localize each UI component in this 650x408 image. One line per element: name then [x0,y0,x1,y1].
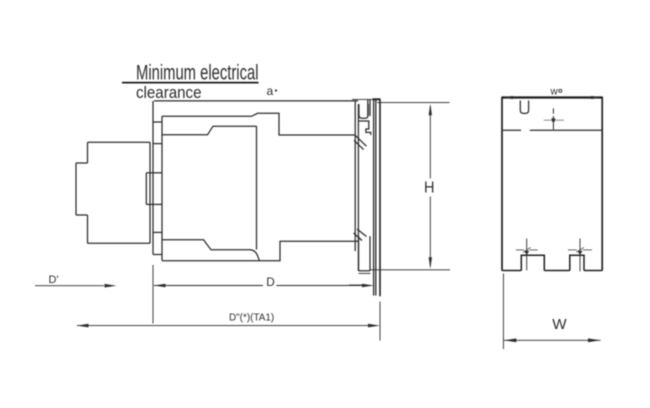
svg-text:Minimum electrical: Minimum electrical [136,62,259,85]
svg-text:clearance: clearance [136,83,202,102]
svg-text:w: w [550,87,559,98]
svg-text:H: H [424,180,435,197]
svg-text:W: W [552,316,567,333]
svg-text:D: D [266,275,275,289]
svg-text:a: a [267,84,274,98]
svg-text:D': D' [49,274,59,286]
svg-text:D"(*)(TA1): D"(*)(TA1) [229,312,274,323]
